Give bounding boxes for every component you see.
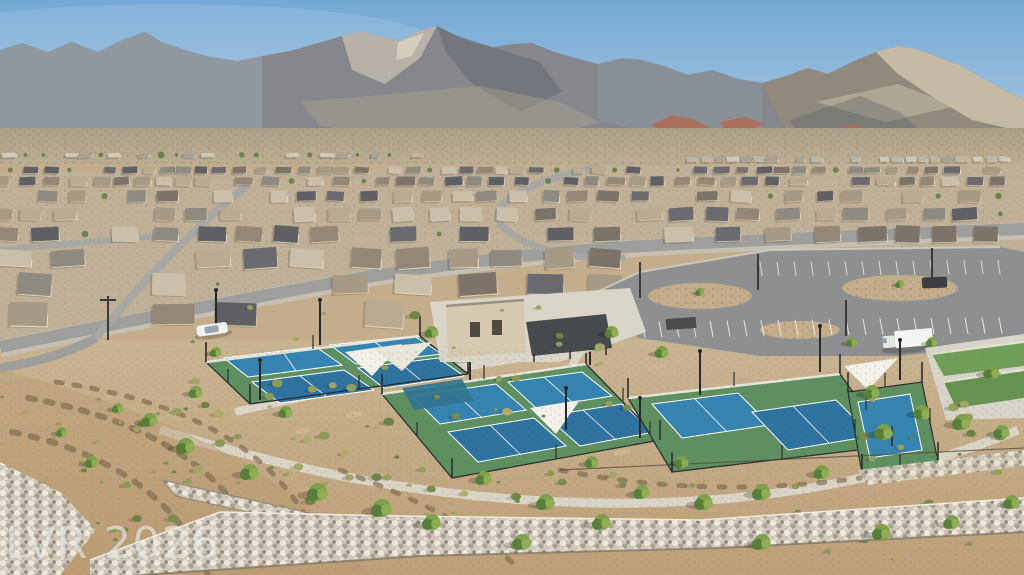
shrub <box>409 311 420 319</box>
shrub <box>156 412 160 415</box>
house <box>362 300 405 330</box>
house <box>287 248 325 270</box>
house <box>839 190 864 204</box>
yard-tree <box>545 178 551 184</box>
shrub <box>164 461 168 464</box>
shrub <box>994 469 1002 475</box>
house <box>110 227 139 243</box>
house <box>494 207 519 224</box>
yard-tree <box>307 153 312 158</box>
shrub <box>376 426 379 429</box>
shrub <box>958 453 962 456</box>
shrub <box>608 472 616 478</box>
yard-tree <box>175 153 178 156</box>
shrub <box>556 342 563 347</box>
house <box>667 207 695 224</box>
house <box>0 249 33 269</box>
house <box>193 176 213 188</box>
house <box>394 247 431 272</box>
yard-tree <box>935 193 940 198</box>
shrub <box>215 439 225 447</box>
house <box>704 207 730 224</box>
yard-tree <box>612 167 617 172</box>
house <box>29 227 60 244</box>
shrub <box>452 346 455 348</box>
house <box>0 208 13 222</box>
shrub <box>268 405 272 408</box>
yard-tree <box>42 153 46 157</box>
house <box>856 226 888 244</box>
house <box>18 207 42 222</box>
shrub <box>497 481 500 483</box>
shrub <box>340 450 348 456</box>
house <box>155 190 179 203</box>
house <box>388 226 418 244</box>
shrub <box>294 463 304 470</box>
house <box>260 176 280 188</box>
house <box>421 191 443 203</box>
shrub <box>269 466 274 470</box>
house <box>173 176 191 188</box>
house <box>183 208 208 222</box>
house <box>68 176 87 188</box>
shrub <box>383 418 394 426</box>
house <box>541 190 560 204</box>
shrub <box>322 312 326 315</box>
shrub <box>345 474 354 480</box>
house <box>728 189 752 204</box>
house <box>233 177 254 187</box>
shrub <box>192 378 201 384</box>
house <box>788 177 808 187</box>
house <box>151 304 196 327</box>
shrub <box>319 432 330 440</box>
shrub <box>346 384 356 392</box>
yard-tree <box>998 212 1003 217</box>
shrub <box>381 365 388 371</box>
shrub <box>966 430 976 437</box>
yard-tree <box>254 153 259 158</box>
shrub <box>201 402 210 408</box>
shrub <box>910 436 914 439</box>
shrub <box>897 445 904 450</box>
shrub <box>453 511 457 514</box>
shrub <box>265 393 274 400</box>
house <box>814 208 837 222</box>
shrub <box>594 343 605 351</box>
yard-tree <box>554 167 559 172</box>
shrub <box>214 410 224 418</box>
house <box>391 190 413 204</box>
house <box>565 190 589 204</box>
house <box>52 208 78 223</box>
house <box>957 190 982 205</box>
shrub <box>868 456 875 462</box>
yard-tree <box>833 167 839 173</box>
house <box>428 207 452 223</box>
yard-tree <box>768 193 773 198</box>
house <box>734 208 760 223</box>
house <box>542 247 575 271</box>
shrub <box>558 479 567 486</box>
shrub <box>51 437 55 440</box>
house <box>695 191 719 203</box>
shrub <box>547 471 554 476</box>
yard-tree <box>98 153 103 158</box>
shrub <box>292 437 296 440</box>
house <box>36 190 58 203</box>
shrub <box>110 527 117 532</box>
house <box>292 206 316 223</box>
house <box>850 177 871 187</box>
shrub <box>556 333 564 339</box>
yard-tree <box>387 153 391 157</box>
shrub <box>94 440 99 444</box>
house <box>525 274 564 297</box>
shrub <box>618 482 626 488</box>
house <box>783 190 803 204</box>
house <box>394 176 416 187</box>
shrub <box>237 481 241 484</box>
shrub <box>193 465 204 473</box>
house <box>392 273 433 296</box>
clubhouse-door <box>492 320 502 335</box>
clubhouse-door <box>470 322 480 337</box>
shrub <box>452 413 460 419</box>
house <box>0 226 19 243</box>
house <box>922 208 947 222</box>
shrub <box>960 401 969 408</box>
shrub <box>185 479 192 484</box>
shrub <box>308 386 317 393</box>
aerial-photo: LVR 2026 <box>0 0 1024 575</box>
shrub <box>792 484 800 490</box>
house <box>152 227 180 243</box>
yard-tree <box>676 168 679 171</box>
shrub <box>100 481 103 483</box>
house <box>126 190 147 204</box>
house <box>595 190 620 204</box>
shrub <box>967 542 973 547</box>
dark-suv <box>922 277 947 289</box>
shrub <box>114 538 118 541</box>
house <box>545 227 574 243</box>
shrub <box>893 556 899 560</box>
house <box>583 176 599 188</box>
shrub <box>97 398 101 401</box>
yard-tree <box>24 153 28 157</box>
yard-tree <box>82 231 89 238</box>
house <box>212 190 234 204</box>
shrub <box>284 472 289 476</box>
house <box>330 274 369 295</box>
yard-tree <box>239 152 244 157</box>
yard-tree <box>67 168 71 172</box>
shrub <box>502 408 512 415</box>
yard-tree <box>8 168 13 173</box>
shrub <box>172 408 181 415</box>
shrub <box>500 309 504 312</box>
shrub <box>234 434 241 440</box>
yard-tree <box>995 193 1001 199</box>
house <box>194 248 231 269</box>
house <box>15 272 53 298</box>
house <box>218 208 241 222</box>
shrub <box>366 425 369 428</box>
shrub <box>152 470 156 473</box>
shrub <box>118 421 122 424</box>
house <box>629 176 647 189</box>
yard-tree <box>361 179 366 184</box>
shrub <box>191 340 195 343</box>
house <box>269 190 289 204</box>
shrub <box>122 482 131 489</box>
shrub <box>172 470 176 473</box>
house <box>308 226 340 245</box>
shrub <box>623 405 631 411</box>
shrub <box>434 394 440 399</box>
shrub <box>43 481 46 483</box>
yard-tree <box>289 178 295 184</box>
shrub <box>536 305 542 309</box>
house <box>7 302 48 329</box>
house <box>885 208 908 223</box>
house <box>812 226 841 245</box>
house <box>894 225 921 245</box>
house <box>630 191 650 202</box>
yard-tree <box>427 168 432 173</box>
house <box>465 176 482 188</box>
house <box>533 208 557 223</box>
shrub <box>704 480 708 483</box>
house <box>150 273 186 297</box>
shrub <box>329 382 337 388</box>
shrub <box>184 407 188 410</box>
shrub <box>122 527 129 532</box>
yard-tree <box>216 282 220 286</box>
house <box>196 226 227 243</box>
house <box>458 207 483 223</box>
shrub <box>168 514 179 522</box>
house <box>241 247 279 271</box>
house <box>92 176 111 187</box>
house <box>357 208 382 221</box>
house <box>325 191 345 203</box>
shrub <box>542 415 546 418</box>
house <box>763 227 792 244</box>
house <box>326 207 350 222</box>
house <box>456 272 498 298</box>
shrub <box>384 474 392 480</box>
house <box>950 207 979 223</box>
shrub <box>97 522 100 524</box>
shrub <box>419 467 426 472</box>
house <box>271 225 299 245</box>
house <box>458 227 490 244</box>
shrub <box>133 427 140 432</box>
shrub <box>605 401 613 407</box>
shrub <box>933 455 937 458</box>
shrub <box>407 483 412 487</box>
house <box>474 190 498 204</box>
house <box>451 191 474 203</box>
shrub <box>303 437 311 443</box>
shrub <box>57 422 61 425</box>
house <box>662 226 694 244</box>
mail-kiosk <box>666 317 697 330</box>
yard-tree <box>437 232 442 237</box>
house <box>587 248 623 271</box>
shrub <box>597 362 603 366</box>
house <box>930 226 957 245</box>
scene-canvas <box>0 0 1024 575</box>
house <box>714 227 742 244</box>
shrub <box>247 305 253 310</box>
clubhouse-building <box>446 300 526 358</box>
shrub <box>372 473 382 481</box>
shrub <box>323 481 328 484</box>
shrub <box>825 549 832 554</box>
house <box>635 207 663 222</box>
shrub <box>689 483 695 488</box>
shrub <box>511 493 521 500</box>
shrub <box>496 376 502 381</box>
house <box>234 226 264 245</box>
shrub <box>272 379 283 387</box>
shrub <box>23 410 28 413</box>
shrub <box>494 408 498 411</box>
shrub <box>460 491 468 497</box>
house <box>349 247 383 270</box>
shrub <box>512 375 521 381</box>
house <box>489 250 523 269</box>
house <box>567 207 592 223</box>
shrub <box>294 338 298 341</box>
house <box>48 249 86 270</box>
house <box>841 208 869 223</box>
yard-tree <box>158 152 165 159</box>
shrub <box>81 468 87 472</box>
shrub <box>1 396 4 398</box>
house <box>774 207 801 222</box>
house <box>447 248 479 269</box>
house <box>443 176 464 188</box>
shrub <box>427 486 436 493</box>
house <box>763 176 779 187</box>
house <box>358 191 379 204</box>
house <box>295 191 317 203</box>
house <box>901 190 924 204</box>
house <box>507 190 527 203</box>
yard-tree <box>356 153 360 157</box>
shrub <box>395 455 400 459</box>
shrub <box>132 515 141 522</box>
yard-tree <box>102 193 108 199</box>
house <box>390 206 415 223</box>
house <box>152 207 176 223</box>
house <box>592 227 622 244</box>
house <box>972 226 999 244</box>
